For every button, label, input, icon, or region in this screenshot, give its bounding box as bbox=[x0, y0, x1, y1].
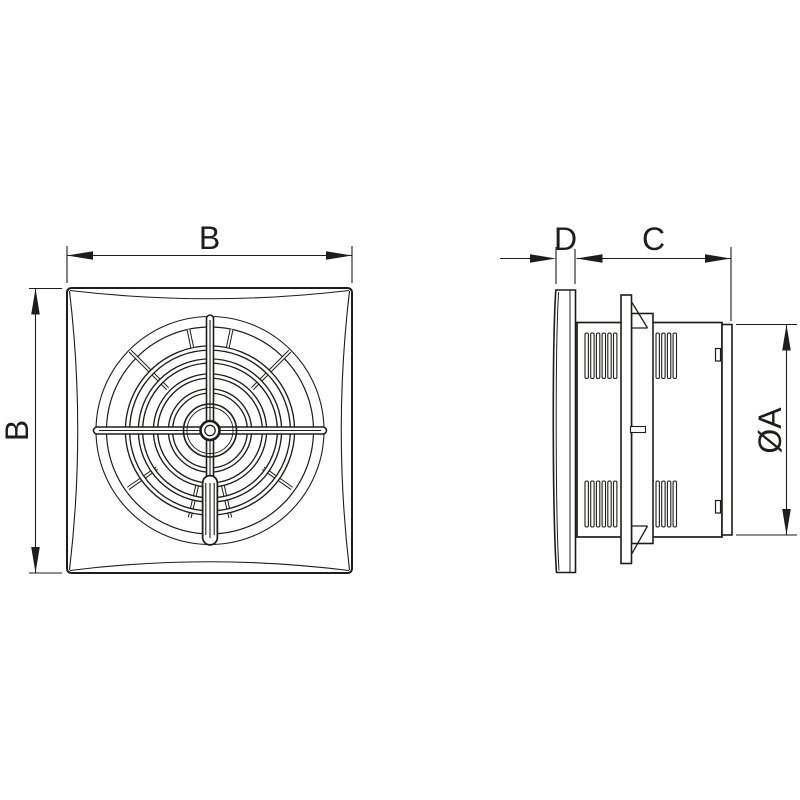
dim-label-depth-d: D bbox=[554, 221, 577, 257]
side-clip-top bbox=[716, 349, 721, 362]
side-view bbox=[553, 290, 732, 573]
front-panel-bevel-top bbox=[70, 291, 349, 299]
drawing-canvas: B B D C ØA bbox=[0, 0, 800, 800]
front-view bbox=[67, 288, 352, 573]
side-end-cap bbox=[722, 325, 732, 536]
dim-label-width-b: B bbox=[199, 220, 220, 256]
side-bracket-plate bbox=[621, 295, 632, 564]
hub-center-hole bbox=[205, 425, 215, 435]
front-panel-bevel-left bbox=[70, 291, 78, 570]
dimension-depth-c bbox=[577, 247, 732, 321]
dim-label-diameter-a: ØA bbox=[752, 407, 788, 454]
front-panel-bevel-bottom bbox=[70, 562, 349, 571]
dim-label-depth-c: C bbox=[642, 221, 665, 257]
dim-label-height-b: B bbox=[0, 420, 35, 441]
front-panel-bevel-right bbox=[341, 291, 349, 570]
fan-dimension-drawing: B B D C ØA bbox=[0, 0, 800, 800]
side-bracket-tab bbox=[631, 427, 646, 433]
side-clip-bottom bbox=[716, 501, 721, 514]
